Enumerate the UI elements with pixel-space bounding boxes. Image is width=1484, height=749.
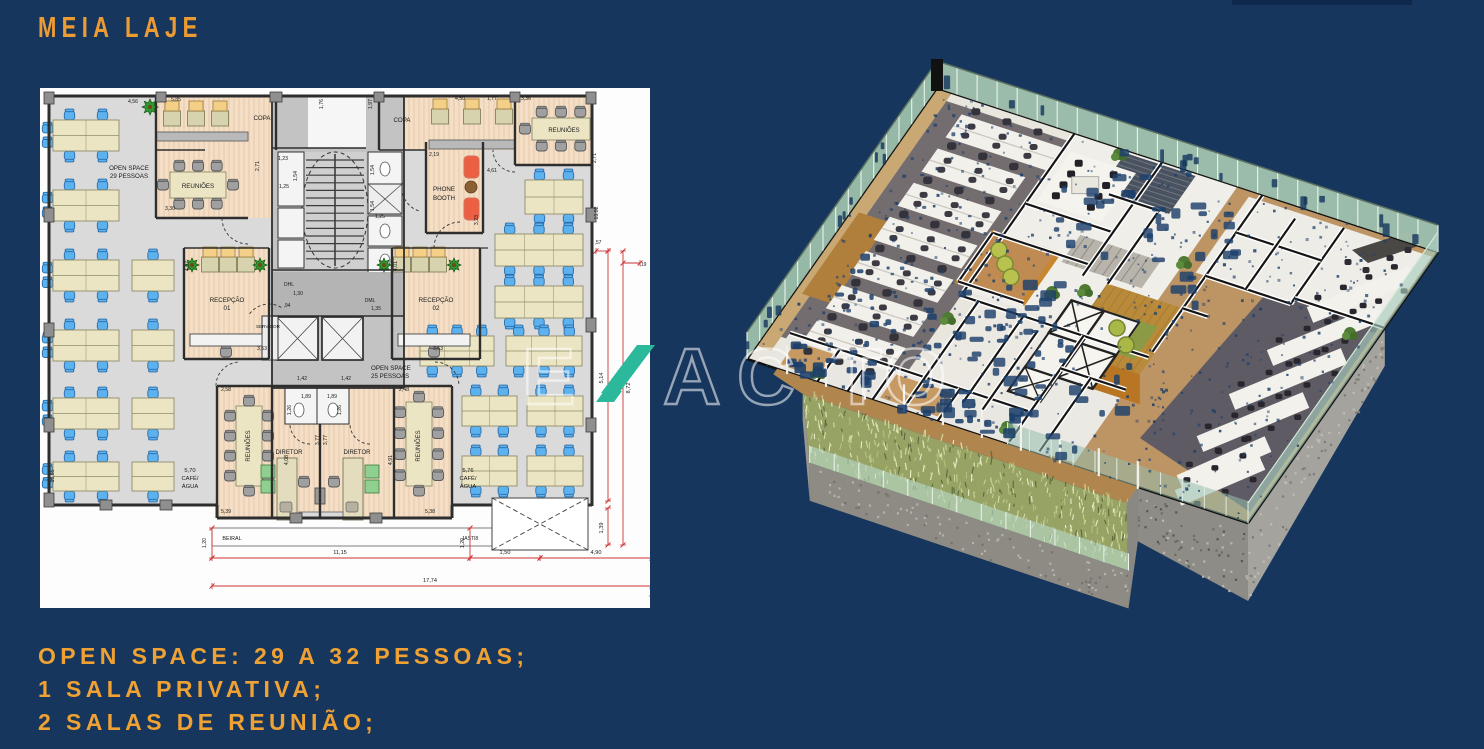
svg-text:O: O bbox=[884, 332, 946, 421]
svg-text:E: E bbox=[522, 332, 575, 421]
svg-text:T: T bbox=[833, 332, 882, 421]
svg-text:A: A bbox=[663, 332, 721, 421]
svg-text:C: C bbox=[737, 332, 795, 421]
